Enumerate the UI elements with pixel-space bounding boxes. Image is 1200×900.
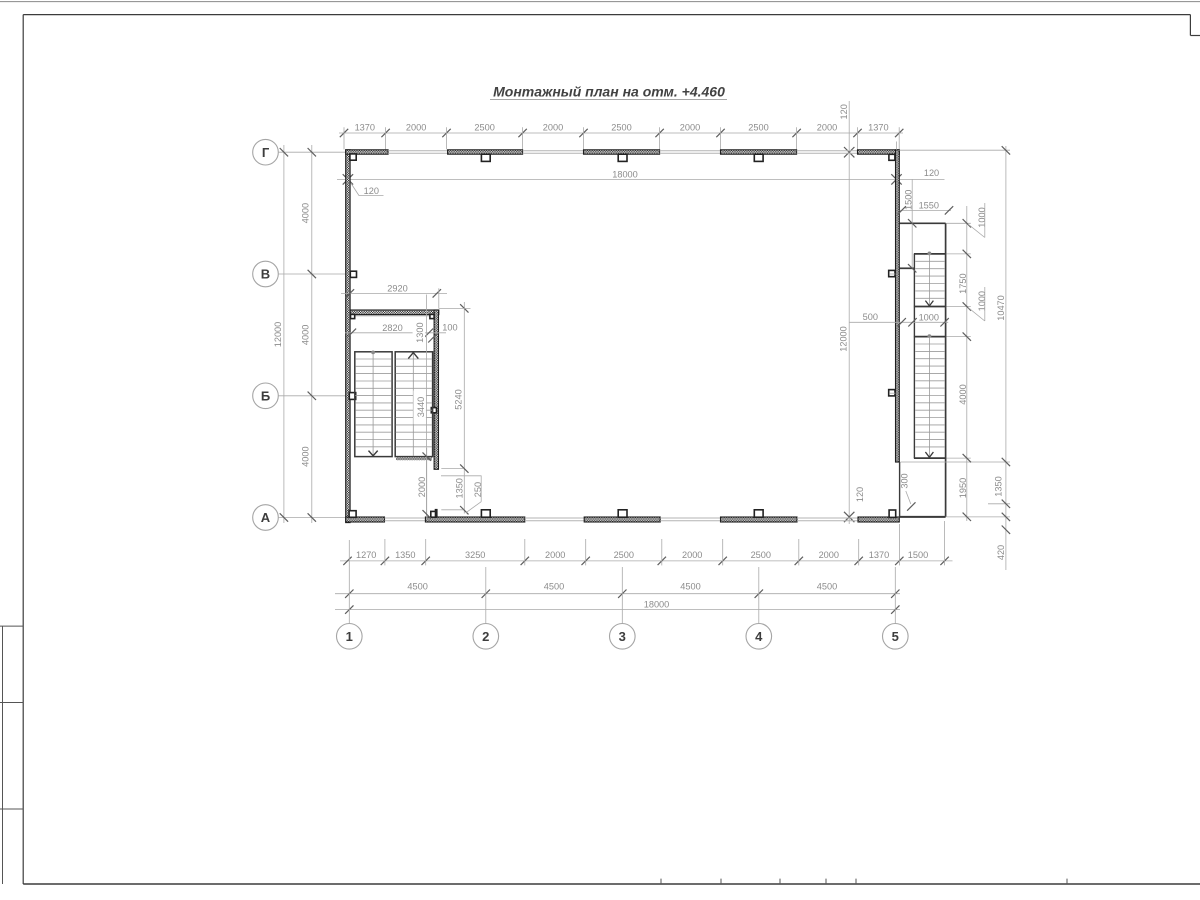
svg-text:2820: 2820 [382, 323, 402, 333]
svg-text:В: В [261, 267, 270, 282]
svg-text:4: 4 [755, 629, 763, 644]
svg-text:120: 120 [924, 168, 939, 178]
svg-text:100: 100 [442, 322, 457, 332]
svg-text:1270: 1270 [356, 550, 376, 560]
svg-text:1750: 1750 [958, 273, 968, 293]
svg-text:1000: 1000 [977, 291, 987, 311]
svg-text:1350: 1350 [395, 550, 415, 560]
svg-text:250: 250 [473, 482, 483, 497]
svg-text:2000: 2000 [543, 123, 563, 133]
svg-text:300: 300 [899, 473, 909, 488]
svg-text:4500: 4500 [544, 581, 564, 591]
svg-text:120: 120 [855, 487, 865, 502]
svg-text:4500: 4500 [817, 581, 837, 591]
svg-text:10470: 10470 [996, 295, 1006, 321]
svg-text:420: 420 [996, 545, 1006, 560]
svg-text:2000: 2000 [406, 123, 426, 133]
svg-text:2000: 2000 [417, 477, 427, 497]
svg-text:3250: 3250 [465, 550, 485, 560]
svg-text:120: 120 [364, 186, 379, 196]
svg-text:1: 1 [346, 629, 353, 644]
svg-text:2: 2 [482, 629, 489, 644]
svg-text:1500: 1500 [908, 550, 928, 560]
svg-text:2500: 2500 [611, 123, 631, 133]
svg-text:1350: 1350 [454, 478, 464, 498]
svg-text:А: А [261, 510, 271, 525]
svg-text:Монтажный план на отм. +4.460: Монтажный план на отм. +4.460 [493, 84, 725, 100]
svg-text:12000: 12000 [273, 322, 283, 348]
svg-text:1370: 1370 [869, 550, 889, 560]
svg-text:4000: 4000 [301, 446, 311, 466]
svg-text:2920: 2920 [387, 283, 407, 293]
svg-text:4000: 4000 [301, 325, 311, 345]
svg-text:18000: 18000 [644, 599, 670, 609]
svg-text:12000: 12000 [838, 326, 848, 352]
svg-text:1370: 1370 [868, 123, 888, 133]
svg-text:Г: Г [262, 145, 270, 160]
svg-text:2500: 2500 [748, 123, 768, 133]
svg-text:1950: 1950 [958, 478, 968, 498]
svg-text:1370: 1370 [355, 123, 375, 133]
svg-text:4000: 4000 [301, 203, 311, 223]
svg-text:4500: 4500 [407, 581, 427, 591]
svg-text:4000: 4000 [958, 384, 968, 404]
svg-text:1000: 1000 [919, 313, 939, 323]
svg-text:2000: 2000 [817, 123, 837, 133]
svg-text:2500: 2500 [474, 123, 494, 133]
svg-text:2500: 2500 [751, 550, 771, 560]
svg-text:2000: 2000 [545, 550, 565, 560]
svg-text:1000: 1000 [977, 207, 987, 227]
svg-text:2000: 2000 [819, 550, 839, 560]
svg-text:5240: 5240 [453, 389, 463, 409]
svg-text:Б: Б [261, 388, 270, 403]
svg-text:1550: 1550 [919, 200, 939, 210]
svg-text:3: 3 [619, 629, 626, 644]
svg-text:500: 500 [863, 312, 878, 322]
svg-text:4500: 4500 [680, 581, 700, 591]
svg-text:5: 5 [892, 629, 899, 644]
svg-text:2500: 2500 [614, 550, 634, 560]
svg-text:18000: 18000 [612, 169, 638, 179]
svg-text:2000: 2000 [682, 550, 702, 560]
svg-text:3440: 3440 [416, 397, 426, 417]
svg-text:120: 120 [839, 104, 849, 119]
svg-text:2000: 2000 [680, 123, 700, 133]
svg-text:1300: 1300 [415, 322, 425, 342]
svg-text:1350: 1350 [994, 476, 1004, 496]
